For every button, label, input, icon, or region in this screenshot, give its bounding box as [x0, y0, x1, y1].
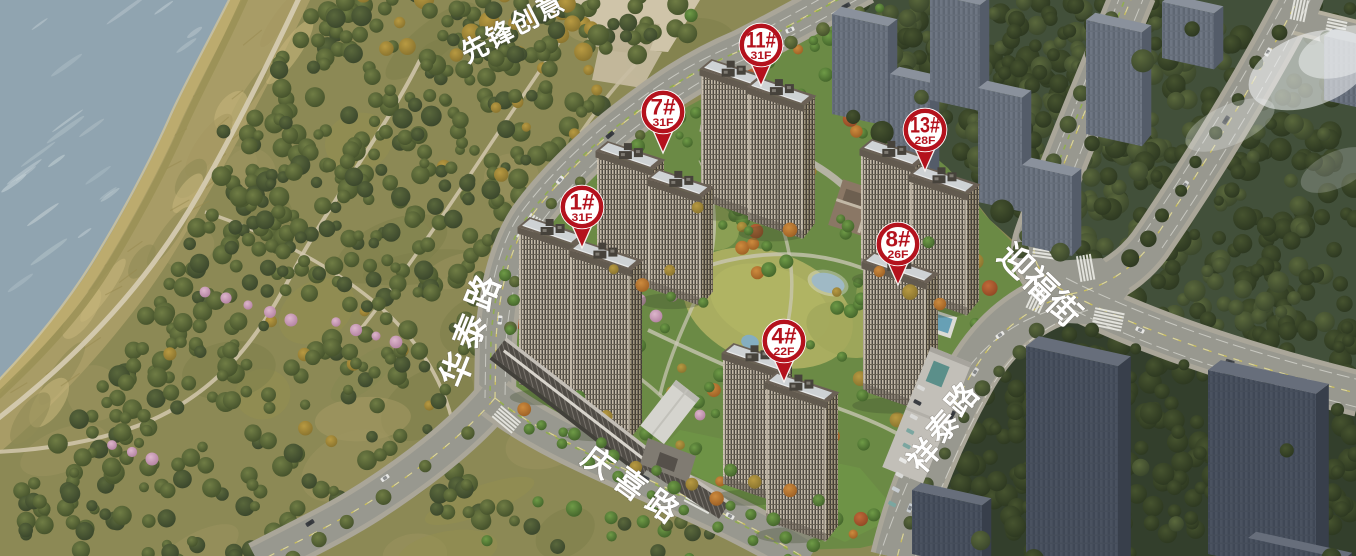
svg-text:8#: 8# — [886, 227, 911, 252]
svg-text:31F: 31F — [653, 117, 674, 129]
svg-text:7#: 7# — [651, 95, 676, 120]
svg-text:31F: 31F — [751, 50, 772, 62]
svg-text:22F: 22F — [774, 346, 795, 358]
svg-text:28F: 28F — [915, 135, 936, 147]
svg-text:11#: 11# — [746, 28, 776, 53]
svg-text:26F: 26F — [888, 249, 909, 261]
svg-text:4#: 4# — [772, 324, 797, 349]
svg-text:1#: 1# — [570, 190, 595, 215]
svg-text:13#: 13# — [910, 113, 940, 138]
svg-text:31F: 31F — [572, 212, 593, 224]
